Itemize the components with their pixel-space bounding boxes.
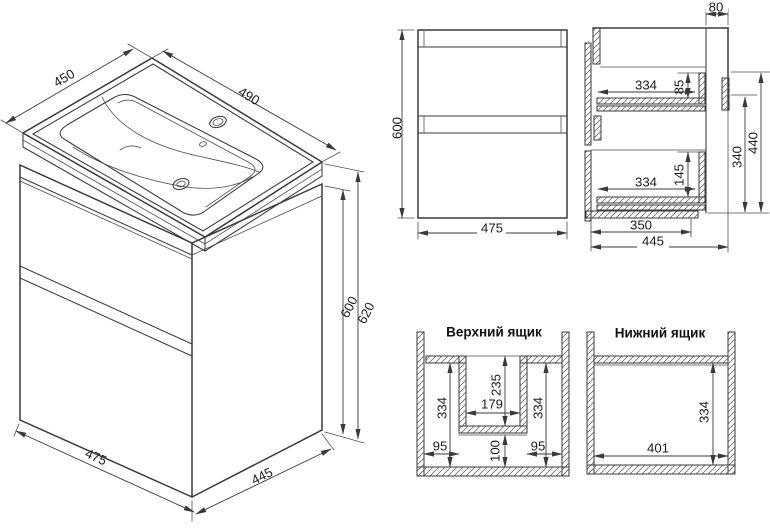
upper-dim-95-right: 95 [531, 439, 546, 454]
side-dim-334-upper: 334 [635, 78, 657, 93]
side-sink-front-panel [593, 28, 600, 64]
lower-drawer-left-wall [587, 332, 594, 474]
side-dim-445: 445 [642, 234, 664, 249]
cabinet-edges [20, 165, 322, 497]
side-section-view: 80 334 85 334 145 350 445 340 440 [585, 0, 770, 252]
drawer-separation-groove [20, 266, 192, 356]
front-drawer2-top-rail [418, 116, 567, 133]
side-dim-80: 80 [709, 0, 724, 15]
front-cabinet-outline [418, 30, 567, 218]
lower-dim-334: 334 [697, 401, 712, 423]
side-dim-85: 85 [672, 80, 687, 95]
front-dim-600: 600 [390, 117, 405, 139]
lower-drawer-right-wall [728, 332, 735, 474]
front-drawer2-rail-ticks [424, 116, 561, 133]
isometric-view: 450 490 600 620 475 445 [1, 44, 378, 521]
drain-hole [172, 177, 191, 192]
upper-drawer-cutout-left-wall [459, 356, 466, 426]
upper-dim-100: 100 [488, 440, 503, 462]
countertop-thickness-edges [23, 133, 322, 251]
side-dim-334-lower: 334 [635, 175, 657, 190]
upper-drawer-left-wall [417, 332, 424, 476]
upper-drawer-cutout-right-wall [520, 356, 527, 426]
lower-drawer-front-wall [587, 465, 735, 474]
vanity-technical-drawing: 450 490 600 620 475 445 600 475 [0, 0, 770, 528]
upper-drawer-right-wall [562, 332, 569, 476]
side-front-rail-block [594, 116, 601, 140]
lower-dim-401: 401 [647, 441, 669, 456]
side-lower-slide-rail [597, 205, 705, 210]
front-drawer1-rail-ticks [424, 30, 561, 47]
lower-drawer-title: Нижний ящик [615, 326, 706, 341]
side-dim-440: 440 [746, 132, 761, 154]
upper-dim-235: 235 [489, 374, 504, 396]
side-lower-drawer-back-wall [699, 152, 705, 203]
cabinet-top-groove [20, 177, 192, 255]
upper-dim-334-left: 334 [435, 397, 450, 419]
side-lower-drawer-bottom [597, 197, 705, 203]
side-upper-slide-rail [597, 106, 705, 111]
side-dim-340: 340 [730, 146, 745, 168]
side-wall-mount-rail [722, 78, 729, 110]
upper-dim-334-right: 334 [531, 397, 546, 419]
upper-drawer-front-wall [417, 467, 569, 476]
front-extension-lines [398, 30, 567, 239]
basin-bottom-curve [73, 147, 252, 188]
upper-dim-95-left: 95 [433, 439, 448, 454]
faucet-hole [208, 114, 227, 129]
cabinet-top-groove-2 [20, 181, 322, 259]
overflow-hole [199, 141, 207, 147]
side-upper-drawer-front [585, 43, 591, 145]
basin-detail-arc [120, 146, 141, 150]
countertop-outline [23, 58, 322, 237]
side-upper-drawer-bottom [597, 98, 705, 104]
iso-dim-445: 445 [249, 464, 275, 487]
iso-dim-490: 490 [236, 84, 263, 108]
lower-drawer-view: Нижний ящик 401 334 [587, 326, 735, 475]
front-dim-475: 475 [481, 221, 503, 236]
upper-drawer-view: Верхний ящик 334 334 235 100 179 95 95 [417, 325, 569, 477]
technical-drawing-page: 450 490 600 620 475 445 600 475 [0, 0, 770, 528]
side-dim-145: 145 [672, 164, 687, 186]
iso-dim-line-475 [16, 431, 194, 512]
iso-dim-475: 475 [83, 446, 109, 469]
upper-drawer-cutout-back-wall [459, 426, 527, 433]
upper-dim-179: 179 [481, 397, 503, 412]
countertop-lip-line [23, 140, 322, 244]
iso-dim-450: 450 [51, 66, 78, 90]
iso-dim-line-450 [6, 49, 133, 123]
front-view: 600 475 [390, 30, 568, 239]
upper-drawer-title: Верхний ящик [446, 325, 542, 340]
lower-drawer-back-wall [594, 356, 728, 363]
side-dim-350: 350 [630, 218, 652, 233]
